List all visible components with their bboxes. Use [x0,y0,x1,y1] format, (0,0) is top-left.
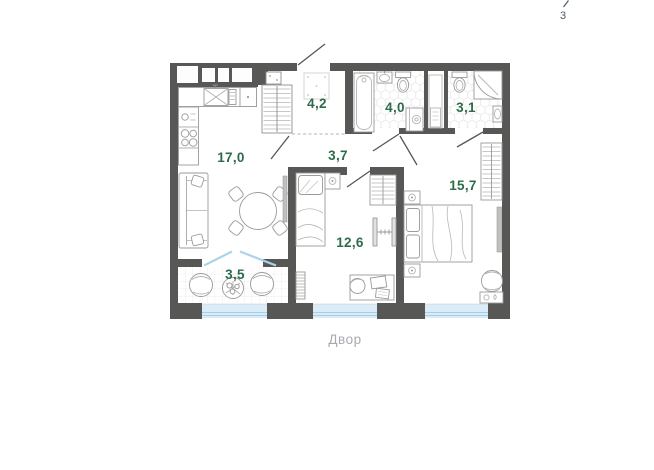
single-bed [296,173,325,246]
room-area-balcony: 3,5 [225,267,245,282]
balcony-chair-left [190,274,213,297]
bedroom-master-door-swing [400,136,417,165]
shower-room-door-swing [457,132,483,147]
bedroom-master-furniture [404,143,503,303]
bathtub [354,73,374,132]
hallway-wardrobe [262,85,292,133]
floor-plan-page: 17,0 4,2 4,0 3,1 3,7 12,6 15,7 3,5 Двор … [0,0,654,470]
tv-panel-master [497,207,502,252]
room-area-corridor: 3,7 [328,148,348,163]
utility-shaft [429,75,442,128]
room-area-kitchen-living: 17,0 [217,150,244,165]
balcony-chair-right [251,273,274,296]
armchair [482,271,503,292]
page-number: 3 [560,10,566,22]
desk [350,275,394,300]
bathroom-door-swing [373,134,399,151]
corner-shower [474,71,502,99]
room-area-bathroom: 4,0 [385,100,405,115]
clothes-rack [373,218,396,246]
room-area-bedroom-master: 15,7 [449,178,476,193]
room-area-shower-room: 3,1 [456,100,476,115]
side-table [480,292,503,303]
bedside-shelf [325,173,340,189]
living-room-furniture [179,173,288,248]
sofa [179,173,208,248]
nightstand-bottom [404,264,420,277]
room-area-hallway: 4,2 [307,96,327,111]
entrance-door-swing [298,44,325,65]
shower-room-sink [493,106,502,122]
nightstand-top [404,191,420,204]
courtyard-label: Двор [328,332,361,347]
floor-plan-svg: 17,0 4,2 4,0 3,1 3,7 12,6 15,7 3,5 Двор … [0,0,654,470]
radiator [296,272,305,299]
page-corner-tick [564,1,569,8]
tv-panel [283,176,287,222]
wardrobe-small-bedroom [370,175,396,205]
dining-table [228,186,289,237]
double-bed [404,205,472,262]
room-area-bedroom-small: 12,6 [336,235,364,250]
wardrobe-master [481,143,502,200]
vent-shaft-boxes [177,66,252,83]
windows [202,304,488,318]
living-room-door-swing [271,136,289,159]
bathroom-sink [377,71,392,83]
washing-machine [406,108,423,131]
bedroom-small-door-swing [347,171,370,187]
